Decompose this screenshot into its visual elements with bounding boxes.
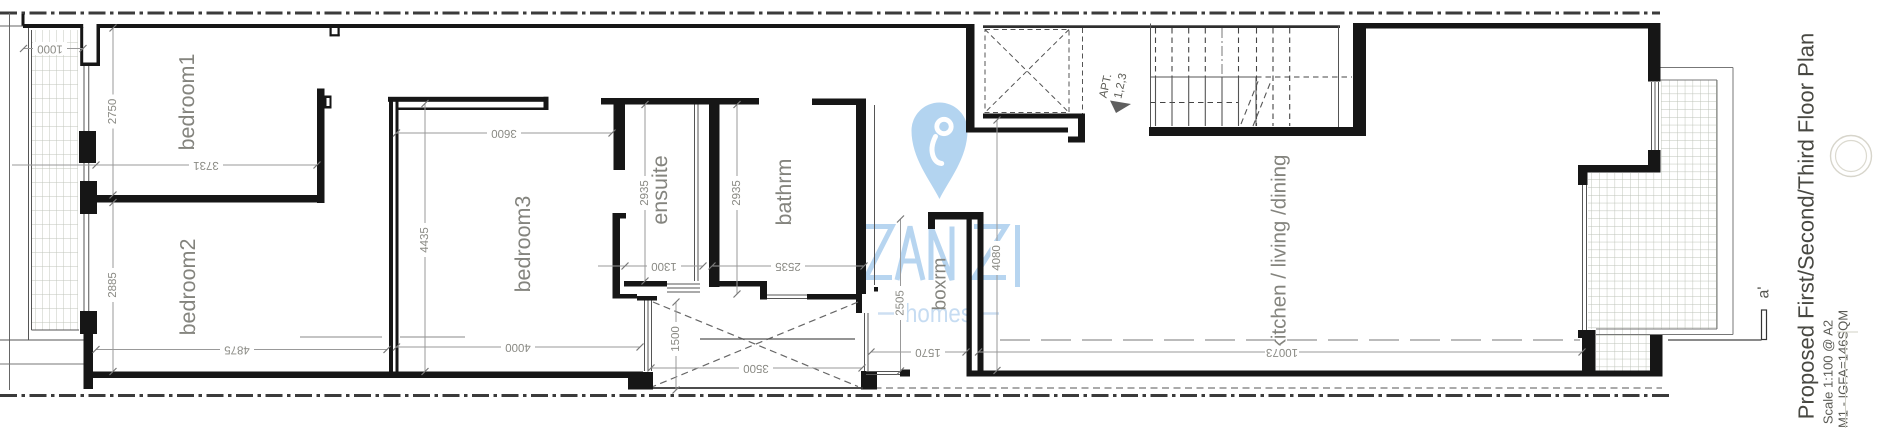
svg-text:1300: 1300 (651, 260, 677, 272)
svg-text:4080: 4080 (991, 245, 1003, 271)
svg-text:APT.: APT. (1098, 73, 1115, 99)
svg-text:3731: 3731 (193, 159, 219, 171)
svg-text:2885: 2885 (107, 272, 119, 298)
svg-text:1570: 1570 (915, 346, 941, 358)
svg-text:bedroom3: bedroom3 (511, 196, 535, 293)
svg-text:1000: 1000 (37, 42, 63, 54)
svg-text:a': a' (1756, 287, 1773, 299)
svg-text:Proposed First/Second/Third Fl: Proposed First/Second/Third Floor Plan (1793, 33, 1818, 419)
svg-text:bedroom1: bedroom1 (175, 54, 199, 151)
svg-text:bedroom2: bedroom2 (176, 239, 200, 336)
svg-text:4435: 4435 (419, 227, 431, 253)
svg-text:1,2,3: 1,2,3 (1112, 72, 1129, 100)
svg-text:3600: 3600 (491, 127, 517, 139)
svg-text:2535: 2535 (775, 260, 801, 272)
svg-text:M1 - IGFA=146SQM: M1 - IGFA=146SQM (1835, 310, 1850, 428)
svg-text:Scale 1:100 @ A2: Scale 1:100 @ A2 (1820, 320, 1835, 424)
svg-text:2505: 2505 (894, 290, 906, 316)
svg-text:1500: 1500 (670, 326, 682, 352)
svg-text:ensuite: ensuite (648, 155, 672, 224)
svg-text:2935: 2935 (731, 180, 743, 206)
svg-text:3500: 3500 (743, 362, 769, 374)
svg-text:bathrm: bathrm (772, 159, 796, 226)
svg-text:boxrm: boxrm (929, 258, 950, 311)
svg-text:10073: 10073 (1266, 346, 1298, 358)
svg-text:4000: 4000 (505, 341, 531, 353)
svg-text:4875: 4875 (224, 343, 250, 355)
svg-text:kitchen / living /dining: kitchen / living /dining (1267, 155, 1290, 350)
svg-text:2935: 2935 (639, 180, 651, 206)
svg-text:2750: 2750 (107, 99, 119, 125)
